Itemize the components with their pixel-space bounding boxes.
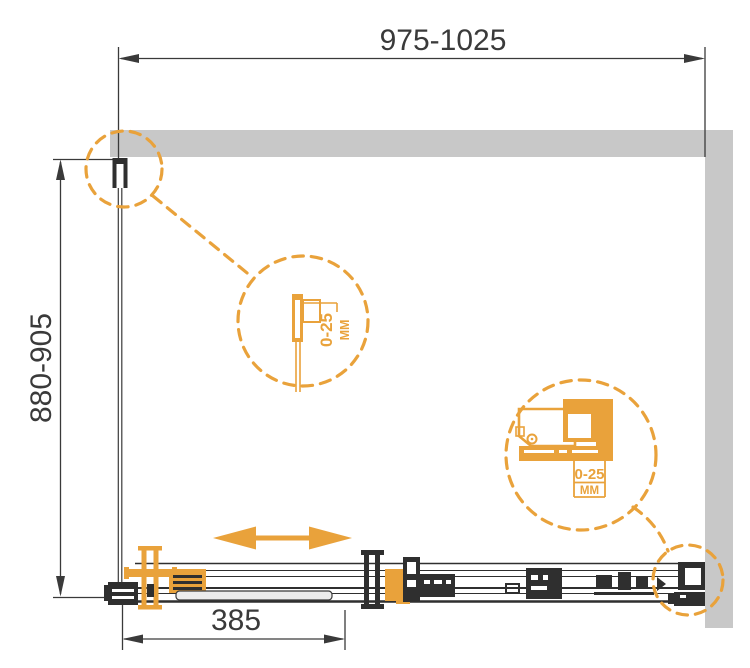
door-track-assembly [104, 546, 705, 610]
wall-profile-bottom-right [668, 562, 705, 606]
carriage-detail [446, 580, 451, 584]
detail-rail-slot [572, 450, 598, 453]
wall-top [110, 130, 733, 157]
dimension-left-label: 880-905 [25, 313, 58, 423]
side-panel-glass [118, 165, 122, 600]
detail-rail-slot [559, 450, 567, 453]
handle-crossbar [127, 569, 174, 577]
arrow-down [56, 576, 65, 597]
arrow-left [123, 635, 144, 644]
detail-middle-content: 0-25 ММ [292, 294, 352, 392]
mech-block [596, 575, 612, 589]
profile-slot [117, 164, 124, 188]
profile-slot [685, 568, 701, 585]
carriage-detail [531, 575, 538, 580]
dimension-bottom-label: 385 [211, 604, 261, 637]
wall-profile-top-left [113, 158, 128, 188]
mech-block [618, 572, 631, 590]
detail-rail-slot [524, 450, 554, 453]
right-roller-carriage [506, 568, 562, 599]
door-bracket-left [169, 569, 206, 593]
carriage-detail [531, 586, 547, 590]
technical-drawing-canvas: 975-1025 880-905 385 [0, 0, 750, 668]
arrow-up [56, 160, 65, 181]
dimension-left: 880-905 [25, 160, 136, 598]
carriage-detail [434, 580, 442, 584]
post-bar [364, 550, 369, 609]
profile-base [674, 592, 705, 606]
bottom-left-profile [104, 582, 138, 605]
profile-slot [112, 596, 134, 599]
detail-frame-slot [568, 414, 591, 438]
detail-right-content: 0-25 ММ [516, 399, 613, 497]
detail-profile-slot [295, 300, 300, 338]
knob-bar [142, 548, 147, 608]
arrow-right [324, 635, 345, 644]
carriage-slot [407, 580, 416, 587]
carriage-slot [407, 562, 416, 574]
mech-bar [594, 592, 654, 595]
carriage-detail [543, 575, 548, 580]
center-post [361, 550, 384, 609]
profile-body [108, 582, 138, 605]
detail-screw-center [531, 438, 534, 441]
detail-middle-unit: ММ [338, 320, 352, 341]
detail-leader-2 [633, 507, 668, 551]
detail-callouts [86, 131, 723, 615]
detail-rail-band [519, 446, 613, 461]
knob-core [147, 584, 154, 597]
dimension-bottom: 385 [123, 604, 346, 650]
post-bar [375, 550, 380, 609]
arrow-head-left [213, 527, 256, 550]
mech-block [636, 576, 648, 589]
door-panel-bar [176, 591, 332, 600]
profile-slot [112, 589, 134, 592]
profile-detail [680, 595, 686, 598]
detail-right-value: 0-25 [574, 466, 604, 483]
bracket-stripe [173, 587, 202, 590]
arrow-left [119, 54, 140, 63]
carriage-block [419, 574, 455, 597]
knob-bar [154, 548, 159, 608]
detail-middle-value: 0-25 [317, 313, 336, 347]
arrow-head-right [309, 527, 352, 550]
carriage-block [526, 568, 562, 599]
bracket-stripe [173, 575, 202, 578]
bracket-stripe [173, 581, 202, 584]
detail-leader-1 [153, 196, 252, 277]
slide-direction-arrow-icon [213, 527, 352, 550]
carriage-detail [424, 580, 430, 584]
dimension-top-label: 975-1025 [380, 24, 507, 57]
wall-top-band [110, 130, 733, 157]
detail-right-unit: ММ [580, 485, 599, 497]
shower-enclosure-diagram: 975-1025 880-905 385 [0, 0, 750, 668]
arrow-right [684, 54, 705, 63]
